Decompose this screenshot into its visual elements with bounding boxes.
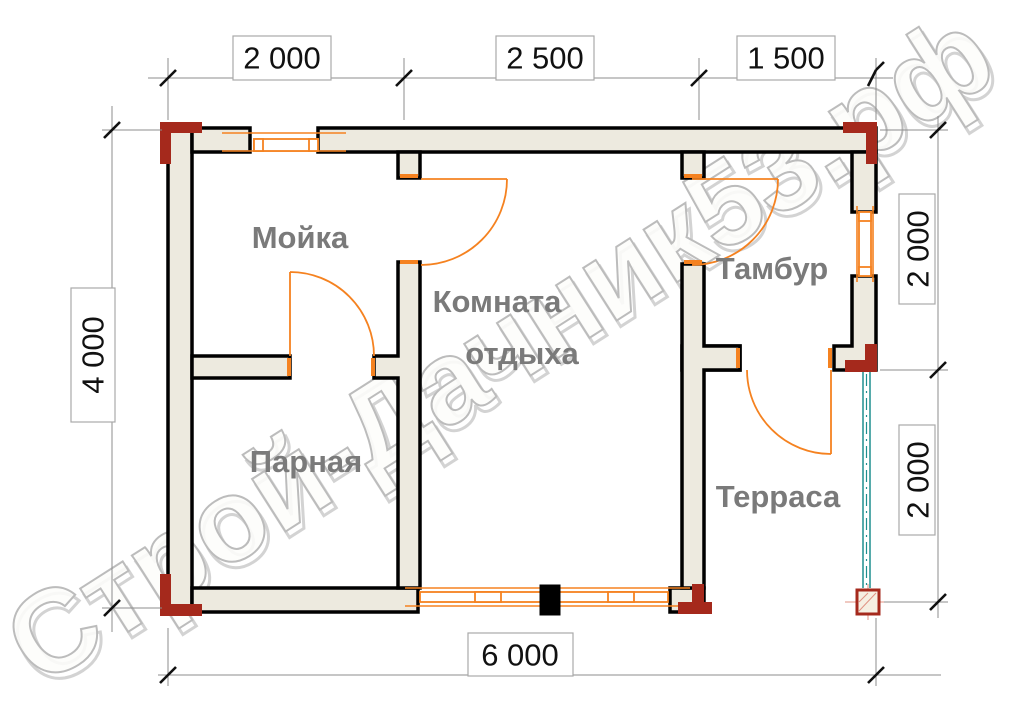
room-label-komnata-line1: Комната bbox=[433, 284, 563, 319]
wall-b-left bbox=[192, 356, 290, 378]
dim-right-2: 2 000 bbox=[901, 441, 936, 519]
dim-top-1: 2 000 bbox=[243, 41, 321, 76]
dim-top-3: 1 500 bbox=[747, 41, 825, 76]
dim-bottom: 6 000 bbox=[481, 638, 559, 673]
window-tambur-east bbox=[857, 206, 873, 282]
door-moyka-to-komnata bbox=[400, 174, 507, 265]
wall-left bbox=[168, 128, 192, 612]
dim-right-1: 2 000 bbox=[901, 210, 936, 288]
room-label-moyka: Мойка bbox=[252, 220, 349, 255]
window-mullion bbox=[540, 585, 560, 615]
window-komnata-south bbox=[405, 585, 690, 615]
floor-plan-page: Строй-Дачник53.рф Строй-Дачник53.рф bbox=[0, 0, 1018, 720]
dimension-bottom: 6 000 bbox=[158, 618, 941, 686]
room-label-komnata-line2: отдыха bbox=[465, 336, 579, 371]
dim-top-2: 2 500 bbox=[506, 41, 584, 76]
dimension-right: 2 000 2 000 bbox=[880, 116, 948, 618]
wall-top-main-segment bbox=[318, 128, 876, 152]
door-tambur-to-terrasa bbox=[736, 348, 832, 454]
room-label-terrasa: Терраса bbox=[716, 479, 841, 514]
floor-plan-drawing: Строй-Дачник53.рф Строй-Дачник53.рф bbox=[0, 0, 1018, 720]
wall-bottom-left-segment bbox=[192, 588, 418, 612]
room-label-parnaya: Парная bbox=[250, 444, 363, 479]
dim-left: 4 000 bbox=[76, 316, 111, 394]
wall-c-main bbox=[682, 264, 740, 588]
terrace-edge bbox=[845, 372, 893, 620]
room-label-tambur: Тамбур bbox=[716, 251, 828, 286]
